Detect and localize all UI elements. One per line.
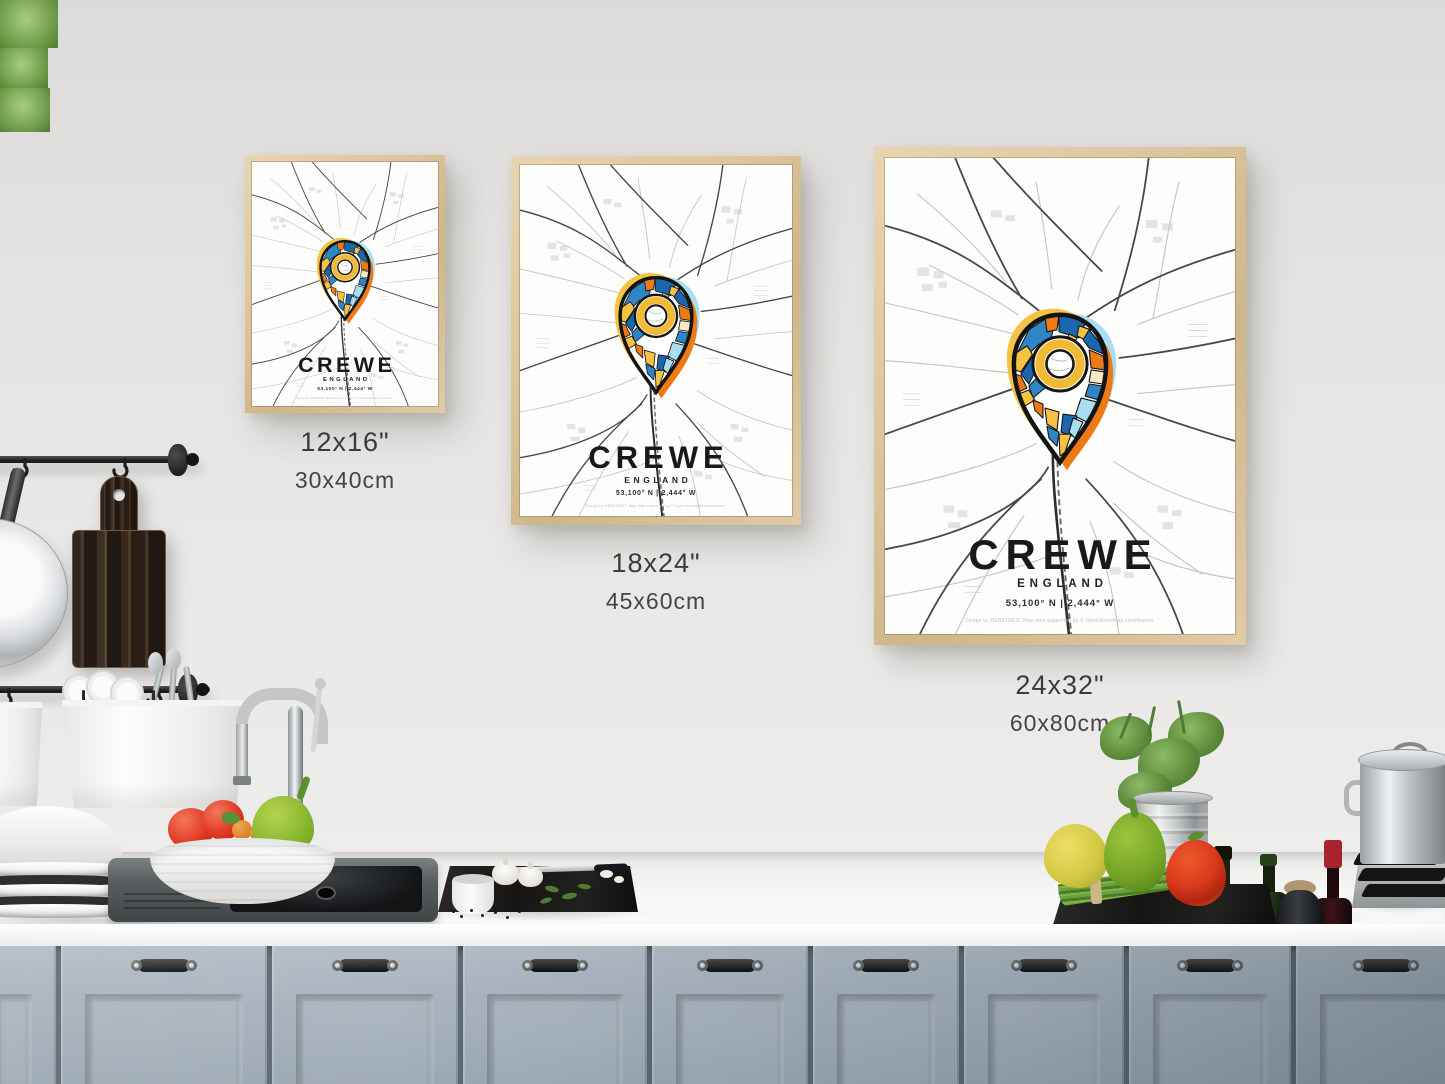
cutting-board-body: [72, 530, 166, 668]
cabinet-door: [1129, 946, 1291, 1084]
peppercorn: [481, 914, 484, 917]
cabinet-door: [272, 946, 458, 1084]
garlic-bulb: [492, 862, 519, 885]
cabinet-panel: [487, 994, 623, 1084]
cabinet-handle: [1184, 959, 1236, 972]
garlic-bulb: [518, 866, 543, 887]
peppercorn: [518, 910, 521, 913]
small-bowl: [452, 876, 494, 914]
size-cm: 45x60cm: [511, 588, 801, 615]
hanging-cutting-board: [72, 476, 164, 666]
poster-frame-small: CREWE ENGLAND 53,100° N | 2,444° W Desig…: [245, 155, 445, 413]
poster-frame-medium: CREWE ENGLAND 53,100° N | 2,444° W Desig…: [511, 156, 801, 525]
stacked-bowl: [0, 806, 122, 868]
cabinet-panel: [1320, 994, 1445, 1084]
size-inches: 24x32": [874, 670, 1246, 701]
stock-pot: [1360, 762, 1445, 864]
cabinet-panel: [0, 994, 32, 1084]
peppercorn: [470, 909, 473, 912]
poster-print-small: CREWE ENGLAND 53,100° N | 2,444° W Desig…: [252, 162, 438, 406]
size-label-medium: 18x24" 45x60cm: [511, 548, 801, 615]
poster-coordinates: 53,100° N | 2,444° W: [520, 490, 792, 497]
cabinet-door: [463, 946, 647, 1084]
cabinet-row: [0, 946, 1445, 1084]
poster-coordinates: 53,100° N | 2,444° W: [885, 599, 1235, 609]
poster-region: ENGLAND: [520, 476, 792, 485]
poster-title: CREWE: [252, 355, 438, 377]
peppercorn: [494, 911, 497, 914]
cabinet-handle: [860, 959, 912, 972]
spoon: [148, 652, 163, 674]
counter-front-edge: [0, 924, 1445, 946]
poster-print-medium: CREWE ENGLAND 53,100° N | 2,444° W Desig…: [520, 165, 792, 516]
peppercorn: [452, 910, 455, 913]
poster-credit: Design by HEBSTREIT. Map data supported …: [885, 619, 1235, 624]
herb-plant: [0, 48, 48, 88]
cutting-board-hole: [113, 489, 125, 501]
poster-region: ENGLAND: [885, 579, 1235, 591]
cabinet-door: [652, 946, 808, 1084]
hanging-pan: [0, 518, 68, 668]
cabinet-panel: [1153, 994, 1267, 1084]
poster-title: CREWE: [520, 442, 792, 473]
garlic-clove: [600, 870, 613, 878]
poster-credit: Design by HEBSTREIT. Map data supported …: [252, 398, 438, 401]
poster-region: ENGLAND: [252, 378, 438, 384]
poster-title: CREWE: [885, 534, 1235, 576]
spoon: [166, 648, 181, 670]
cabinet-door: [61, 946, 267, 1084]
utensil-bucket-partial: [0, 702, 46, 806]
rail-mount: [168, 444, 188, 476]
map-pin-icon: [305, 231, 385, 327]
faucet-spout: [236, 724, 248, 778]
poster-credit: Design by HEBSTREIT. Map data supported …: [520, 505, 792, 509]
cabinet-panel: [837, 994, 935, 1084]
herb-plant: [0, 0, 58, 48]
poster-frame-large: CREWE ENGLAND 53,100° N | 2,444° W Desig…: [874, 147, 1246, 645]
hob-grate: [1361, 884, 1445, 897]
cabinet-handle: [1018, 959, 1070, 972]
cabinet-handle: [339, 959, 391, 972]
cabinet-panel: [296, 994, 434, 1084]
garlic-clove: [614, 876, 624, 883]
cabinet-door: [813, 946, 959, 1084]
cabinet-handle: [529, 959, 581, 972]
peppercorn: [460, 915, 463, 918]
cabinet-panel: [85, 994, 243, 1084]
cabinet-handle: [138, 959, 190, 972]
cabinet-door: [964, 946, 1124, 1084]
cabinet-panel: [676, 994, 784, 1084]
bell-pepper-red: [1166, 840, 1226, 906]
parsley: [222, 812, 240, 824]
size-inches: 18x24": [511, 548, 801, 579]
size-cm: 30x40cm: [245, 467, 445, 494]
map-pin-icon: [598, 263, 715, 403]
cabinet-panel: [988, 994, 1100, 1084]
map-pin-icon: [985, 296, 1136, 477]
sink-drain: [316, 886, 336, 900]
cabinet-door: [0, 946, 56, 1084]
herb-plant: [0, 88, 50, 132]
size-label-small: 12x16" 30x40cm: [245, 427, 445, 494]
cabinet-handle: [1360, 959, 1412, 972]
faucet-nozzle: [233, 776, 251, 785]
poster-coordinates: 53,100° N | 2,444° W: [252, 388, 438, 393]
cabinet-handle: [704, 959, 756, 972]
utensil-bucket: [56, 700, 254, 808]
peppercorn: [506, 916, 509, 919]
bell-pepper-yellow: [1044, 824, 1108, 888]
cabinet-door: [1296, 946, 1445, 1084]
bottle-cap-red: [1324, 840, 1342, 868]
poster-print-large: CREWE ENGLAND 53,100° N | 2,444° W Desig…: [885, 158, 1235, 634]
kitchen-mockup-scene: CREWE ENGLAND 53,100° N | 2,444° W Desig…: [0, 0, 1445, 1084]
size-inches: 12x16": [245, 427, 445, 458]
hob-grate: [1357, 868, 1445, 881]
bottle-cap: [1260, 854, 1277, 866]
